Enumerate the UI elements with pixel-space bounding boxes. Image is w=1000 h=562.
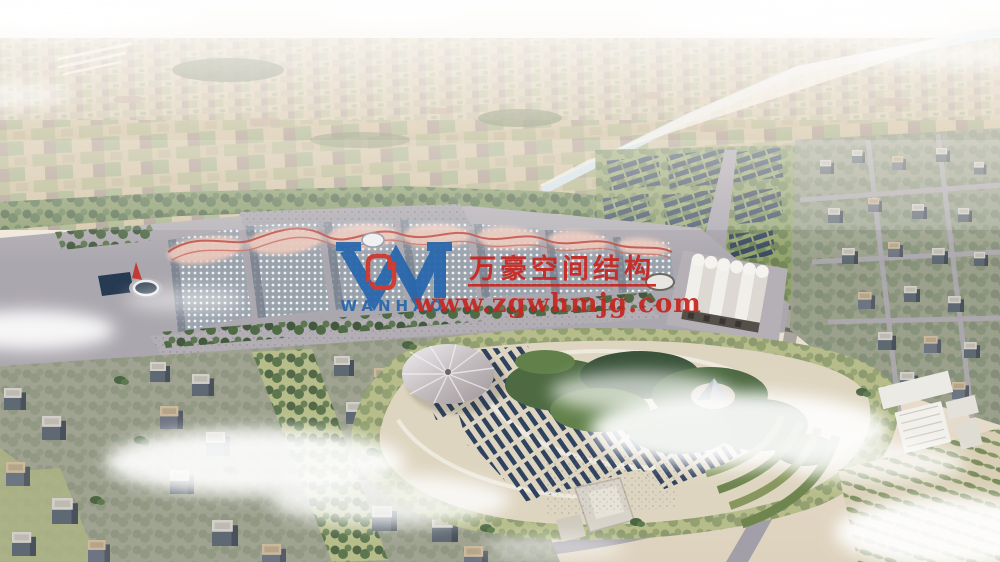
cloud xyxy=(270,474,510,526)
cloud xyxy=(485,535,625,561)
company-name-underline xyxy=(468,284,656,287)
cloud xyxy=(125,289,245,311)
rendering-canvas: WANHAO 万豪空间结构 www.zgwhmjg.com xyxy=(0,0,1000,562)
cloud xyxy=(320,2,460,22)
aerial-rendering: WANHAO 万豪空间结构 www.zgwhmjg.com xyxy=(0,0,1000,562)
cloud xyxy=(550,372,730,412)
company-name-text: 万豪空间结构 xyxy=(469,253,655,285)
pond xyxy=(98,272,134,296)
cloud xyxy=(785,442,965,482)
cloud xyxy=(640,4,960,36)
website-text: www.zgwhmjg.com xyxy=(413,289,702,319)
